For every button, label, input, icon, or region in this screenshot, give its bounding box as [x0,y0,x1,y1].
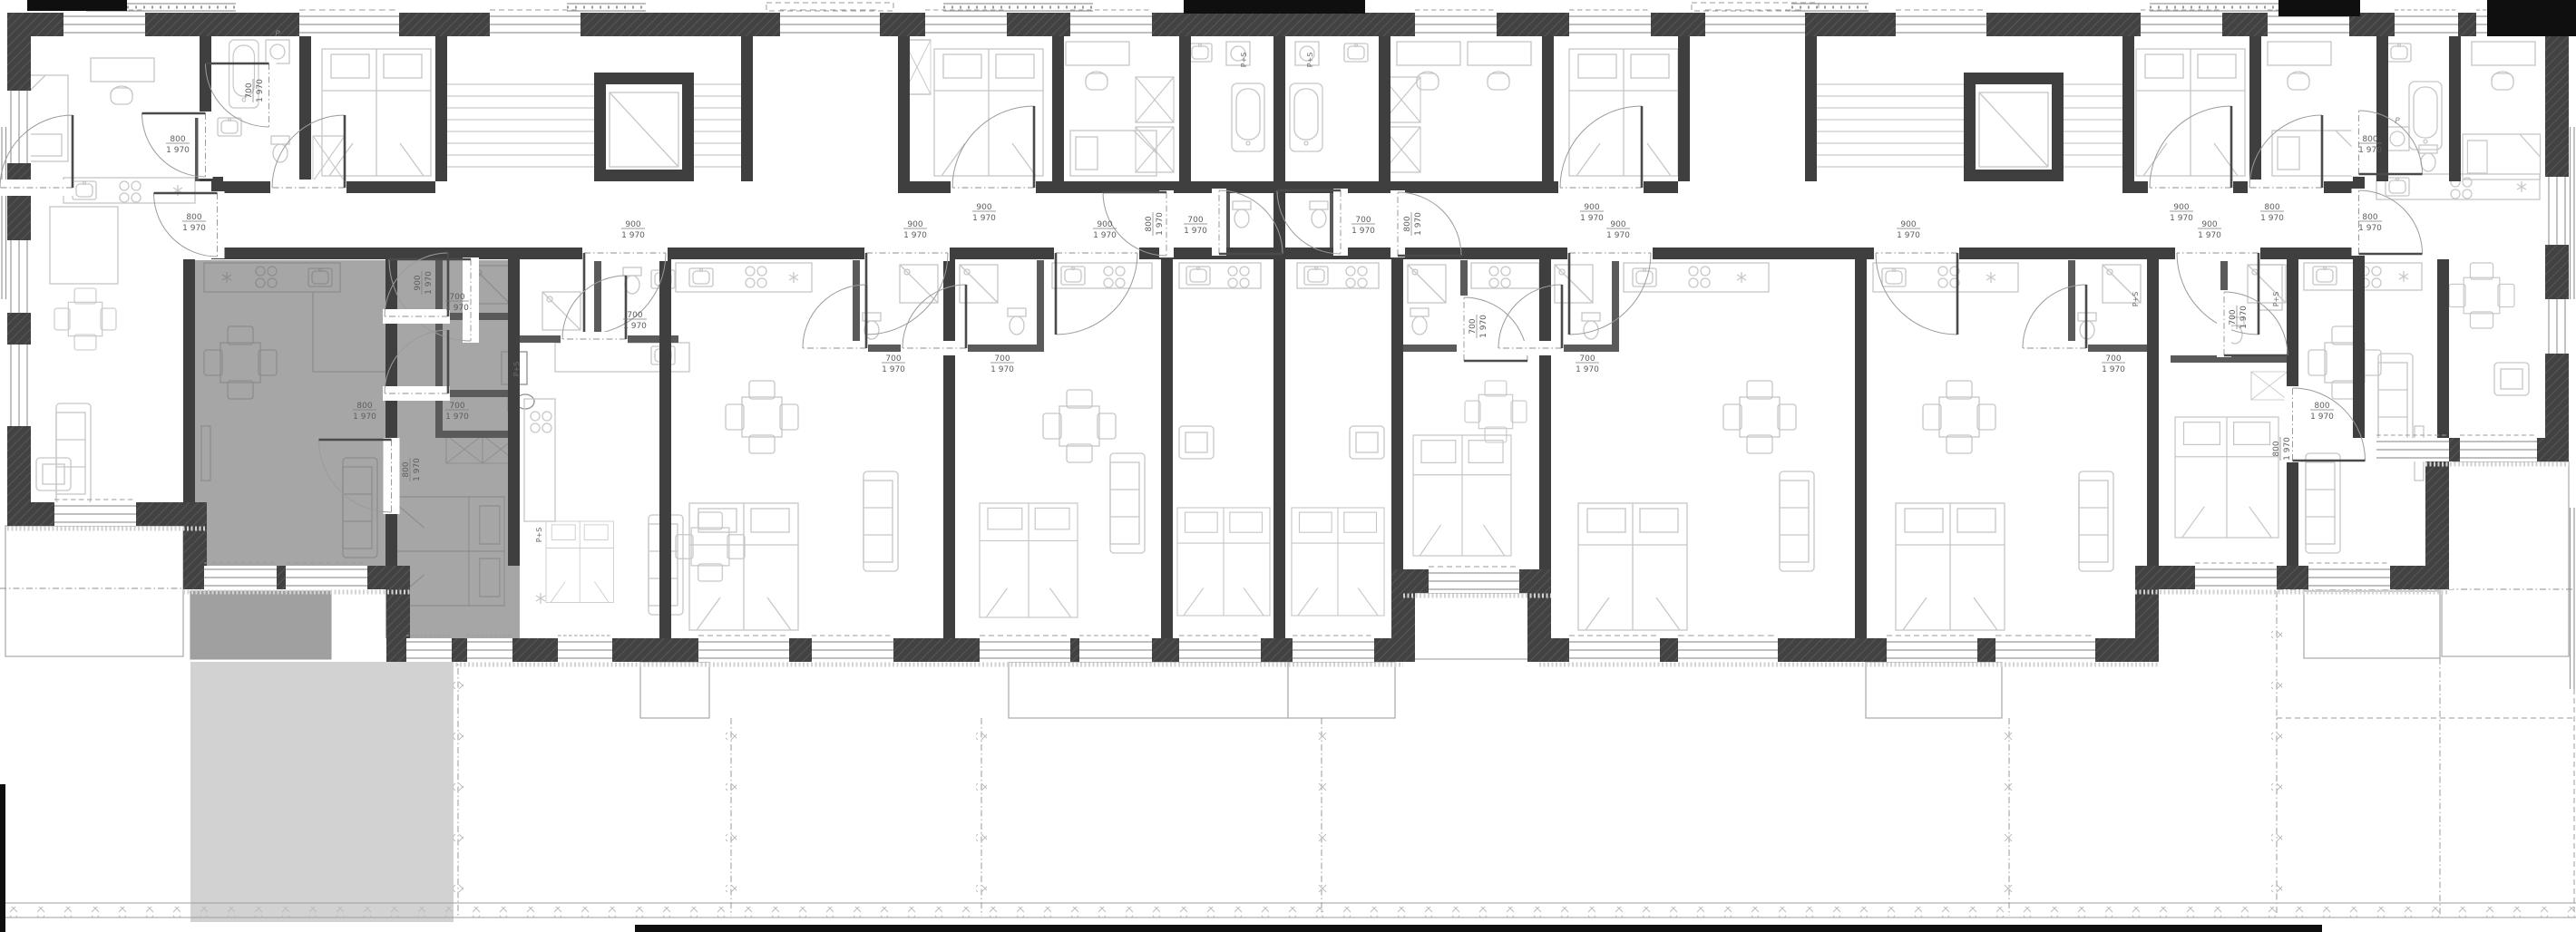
svg-text:900: 900 [976,203,991,212]
svg-text:1 970: 1 970 [1897,231,1920,240]
washer-label: P [2395,117,2400,126]
garden-highlighted[interactable] [190,662,454,922]
svg-text:700: 700 [994,354,1010,364]
svg-text:1 970: 1 970 [166,146,190,155]
window [2395,10,2458,36]
balcony-door [2545,177,2569,245]
svg-text:800: 800 [402,461,411,477]
terrace [2304,591,2440,658]
svg-text:1 970: 1 970 [1093,231,1117,240]
svg-text:1 970: 1 970 [2283,437,2292,461]
window [1569,10,1651,36]
svg-text:1 970: 1 970 [445,304,469,313]
window [490,10,581,36]
window [299,10,399,36]
floor-plan-drawing: 9001 970 9001 970 9001 970 9001 970 9001… [0,0,2576,932]
svg-text:800: 800 [356,402,372,411]
french-door [204,563,277,589]
patio-recess [1408,593,1535,659]
window [1887,636,1977,662]
window [1569,636,1660,662]
window [1179,636,1261,662]
window [2195,563,2277,589]
svg-text:1 970: 1 970 [2239,306,2249,329]
window [54,500,136,526]
svg-text:700: 700 [245,83,254,98]
svg-text:1 970: 1 970 [1606,231,1630,240]
window [286,563,367,589]
svg-text:1 970: 1 970 [1414,212,1423,236]
svg-text:1 970: 1 970 [2102,365,2125,374]
svg-text:800: 800 [1403,216,1412,231]
window [1415,10,1497,36]
svg-text:700: 700 [1187,216,1203,225]
svg-text:1 970: 1 970 [1351,227,1375,236]
washer-dryer-label: P+S [535,528,543,543]
svg-text:800: 800 [170,135,185,144]
svg-text:1 970: 1 970 [882,365,905,374]
window [2545,299,2569,354]
svg-text:800: 800 [2314,402,2329,411]
window [1293,636,1374,662]
svg-text:800: 800 [2362,135,2377,144]
window [2460,435,2537,461]
svg-text:900: 900 [1900,220,1916,229]
window [1995,636,2095,662]
balcony-door [7,240,31,313]
svg-text:700: 700 [1355,216,1371,225]
window [467,636,512,662]
svg-text:1 970: 1 970 [1479,315,1488,338]
svg-text:1 970: 1 970 [903,231,927,240]
svg-text:800: 800 [2362,213,2377,222]
terrace [1009,662,1288,718]
svg-text:800: 800 [186,213,201,222]
window [1070,10,1152,36]
svg-text:1 970: 1 970 [1576,365,1599,374]
svg-text:1 970: 1 970 [2358,224,2382,233]
window [1079,636,1152,662]
svg-text:700: 700 [2105,354,2121,364]
svg-text:900: 900 [907,220,922,229]
svg-text:1 970: 1 970 [1580,214,1604,223]
window [7,345,31,426]
window [558,636,612,662]
window [1429,567,1519,593]
svg-text:1 970: 1 970 [2198,231,2221,240]
svg-text:1 970: 1 970 [1156,212,1165,236]
window [63,10,145,36]
svg-text:900: 900 [1097,220,1112,229]
svg-text:1 970: 1 970 [2310,413,2334,422]
svg-text:900: 900 [2201,220,2217,229]
svg-text:800: 800 [1145,216,1154,231]
svg-text:1 970: 1 970 [1184,227,1207,236]
svg-text:800: 800 [2272,441,2281,456]
window [1678,636,1778,662]
svg-text:900: 900 [1584,203,1599,212]
svg-text:700: 700 [627,311,642,320]
svg-text:1 970: 1 970 [353,413,376,422]
svg-text:700: 700 [2229,309,2238,325]
svg-text:1 970: 1 970 [972,214,996,223]
svg-text:1 970: 1 970 [621,231,645,240]
window [925,10,1007,36]
window [2141,10,2222,36]
window [7,91,31,163]
entrance-door-2[interactable] [1705,10,1805,36]
svg-text:1 970: 1 970 [2170,214,2193,223]
svg-text:1 970: 1 970 [256,79,265,102]
svg-text:1 970: 1 970 [445,413,469,422]
floor-plan-page: 9001 970 9001 970 9001 970 9001 970 9001… [0,0,2576,932]
terrace [1288,662,1395,718]
washer-dryer-label: P+S [2272,292,2280,307]
svg-text:700: 700 [1579,354,1595,364]
terrace [640,662,709,718]
svg-text:900: 900 [2173,203,2189,212]
entrance-door-1[interactable] [780,10,880,36]
svg-text:700: 700 [449,293,464,302]
svg-text:900: 900 [1610,220,1625,229]
svg-text:900: 900 [625,220,640,229]
washer-dryer-label: P+S [512,362,521,377]
window [698,636,789,662]
svg-text:700: 700 [885,354,901,364]
washer-dryer-label: P+S [1240,53,1248,68]
svg-text:900: 900 [414,275,423,290]
terrace [1866,662,2002,718]
terrace [5,526,183,656]
french-door [2308,563,2390,589]
svg-text:1 970: 1 970 [2260,214,2284,223]
svg-text:1 970: 1 970 [182,224,206,233]
svg-text:1 970: 1 970 [413,458,422,481]
terrace [2442,461,2569,656]
window [2376,435,2449,461]
svg-text:1 970: 1 970 [424,271,434,295]
washer-dryer-label: P+S [2132,292,2140,307]
svg-text:700: 700 [449,402,464,411]
svg-text:700: 700 [1469,318,1478,334]
washer-dryer-label: P+S [1306,53,1314,68]
svg-text:1 970: 1 970 [2358,146,2382,155]
svg-text:1 970: 1 970 [990,365,1014,374]
window [980,636,1070,662]
window [406,636,452,662]
svg-text:1 970: 1 970 [623,322,647,331]
washer-label: P [275,30,280,39]
window [812,636,893,662]
svg-text:800: 800 [2264,203,2279,212]
terrace-highlighted[interactable] [190,591,331,659]
window [1896,10,1986,36]
